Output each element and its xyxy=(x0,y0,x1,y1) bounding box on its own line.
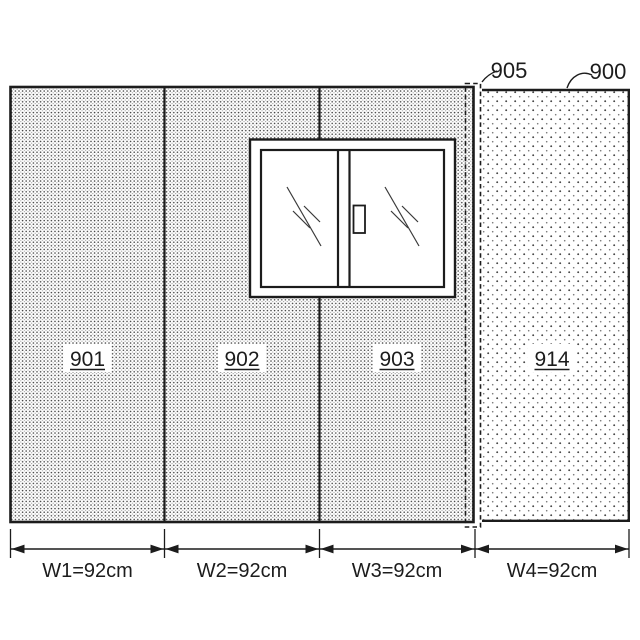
wall-right-section xyxy=(482,90,629,521)
svg-text:903: 903 xyxy=(379,348,414,371)
panel-label-903: 903 xyxy=(373,344,421,372)
dim-label-w4: W4=92cm xyxy=(507,560,598,582)
panel-label-902: 902 xyxy=(218,344,266,372)
ref-label-900: 900 xyxy=(590,59,627,84)
dim-label-w3: W3=92cm xyxy=(352,560,443,582)
panel-label-914: 914 xyxy=(528,344,576,372)
panel-label-901: 901 xyxy=(64,344,112,372)
leader-line-900 xyxy=(567,73,592,88)
dimension-extension-lines xyxy=(11,529,630,558)
svg-text:901: 901 xyxy=(70,348,105,371)
wall-right-outline xyxy=(482,90,629,521)
dim-label-w1: W1=92cm xyxy=(42,560,133,582)
dim-label-w2: W2=92cm xyxy=(197,560,288,582)
window xyxy=(250,140,455,298)
window-handle xyxy=(354,206,366,234)
svg-text:902: 902 xyxy=(224,348,259,371)
patent-figure-canvas: 905 900 901 902 903 914 xyxy=(0,0,640,640)
ref-label-905: 905 xyxy=(491,58,528,83)
wall-elevation-diagram: 905 900 901 902 903 914 xyxy=(0,0,640,640)
svg-text:914: 914 xyxy=(534,348,569,371)
window-inner-frame xyxy=(261,150,444,287)
